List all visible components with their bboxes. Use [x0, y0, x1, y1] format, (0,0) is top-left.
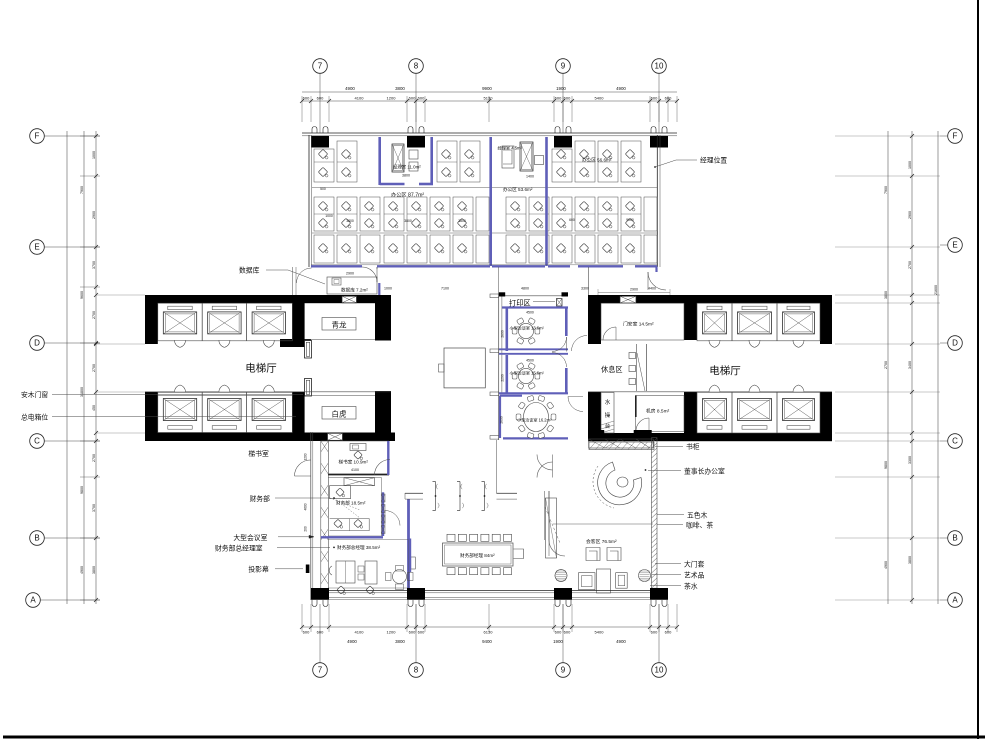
- svg-text:4100: 4100: [355, 96, 365, 101]
- svg-text:经理位置: 经理位置: [700, 156, 727, 165]
- svg-text:2900: 2900: [346, 272, 354, 276]
- svg-text:5400: 5400: [595, 630, 605, 635]
- svg-text:办公区 87.7m²: 办公区 87.7m²: [391, 191, 424, 199]
- svg-text:3800: 3800: [908, 556, 912, 564]
- svg-text:打印区: 打印区: [509, 298, 531, 307]
- svg-text:7100: 7100: [441, 287, 449, 291]
- svg-text:600: 600: [317, 96, 324, 101]
- svg-text:咖啡、茶: 咖啡、茶: [686, 521, 713, 530]
- svg-text:电梯厅: 电梯厅: [709, 364, 741, 377]
- svg-text:机房 8.5m²: 机房 8.5m²: [646, 408, 670, 415]
- svg-text:休息区: 休息区: [601, 365, 623, 374]
- svg-text:600: 600: [303, 96, 310, 101]
- svg-text:4400: 4400: [648, 287, 656, 291]
- svg-text:2700: 2700: [908, 261, 912, 269]
- svg-text:7: 7: [318, 62, 323, 71]
- svg-text:1200: 1200: [387, 96, 397, 101]
- svg-text:7900: 7900: [884, 186, 888, 194]
- svg-text:3800: 3800: [884, 291, 888, 299]
- svg-text:3700: 3700: [92, 504, 96, 512]
- svg-text:数据库: 数据库: [239, 266, 260, 275]
- svg-text:600: 600: [303, 630, 310, 635]
- svg-text:财务部 18.5m²: 财务部 18.5m²: [336, 500, 366, 507]
- svg-text:9: 9: [561, 62, 566, 71]
- svg-text:4800: 4800: [521, 287, 529, 291]
- svg-text:投影幕: 投影幕: [248, 565, 269, 574]
- svg-text:经理室 4.5m²: 经理室 4.5m²: [498, 145, 523, 151]
- svg-text:A: A: [952, 596, 958, 605]
- svg-text:9400: 9400: [482, 639, 492, 644]
- svg-text:4900: 4900: [616, 86, 626, 91]
- svg-text:3800: 3800: [346, 219, 354, 223]
- svg-text:9000: 9000: [626, 218, 634, 222]
- svg-text:E: E: [34, 243, 39, 252]
- svg-text:31800: 31800: [80, 387, 84, 397]
- svg-text:2900: 2900: [92, 211, 96, 219]
- svg-text:600: 600: [409, 630, 416, 635]
- svg-text:1200: 1200: [304, 453, 308, 460]
- svg-text:1000: 1000: [908, 161, 912, 169]
- svg-text:200: 200: [304, 526, 308, 532]
- svg-text:2600: 2600: [500, 416, 504, 424]
- svg-text:8: 8: [414, 666, 419, 675]
- svg-text:4500: 4500: [526, 359, 534, 363]
- svg-text:安木门窗: 安木门窗: [21, 390, 48, 399]
- svg-text:1000: 1000: [325, 214, 333, 218]
- svg-text:五色木: 五色木: [687, 511, 708, 520]
- svg-text:经理室 11.0m²: 经理室 11.0m²: [393, 164, 421, 170]
- svg-text:3700: 3700: [92, 261, 96, 269]
- svg-text:6130: 6130: [484, 630, 494, 635]
- svg-text:4900: 4900: [345, 86, 355, 91]
- svg-text:1400: 1400: [526, 175, 534, 179]
- svg-text:数据库 7.2m²: 数据库 7.2m²: [341, 287, 368, 294]
- svg-text:电梯厅: 电梯厅: [245, 362, 277, 375]
- svg-text:E: E: [952, 241, 957, 250]
- svg-text:F: F: [35, 132, 40, 141]
- svg-text:9800: 9800: [80, 486, 84, 494]
- svg-text:600: 600: [665, 630, 672, 635]
- svg-text:600: 600: [418, 96, 425, 101]
- svg-text:3300: 3300: [908, 456, 912, 464]
- svg-text:9900: 9900: [482, 86, 492, 91]
- svg-text:1000: 1000: [384, 287, 392, 291]
- svg-text:7: 7: [318, 666, 323, 675]
- svg-text:大型会议室: 大型会议室: [233, 533, 267, 542]
- svg-text:450: 450: [92, 405, 96, 411]
- svg-text:3800: 3800: [395, 86, 405, 91]
- svg-text:书柜: 书柜: [686, 442, 700, 451]
- svg-text:600: 600: [317, 630, 324, 635]
- svg-text:小型洽谈室 13.6m²: 小型洽谈室 13.6m²: [510, 324, 545, 330]
- svg-text:10: 10: [655, 62, 664, 71]
- svg-text:2700: 2700: [92, 311, 96, 319]
- svg-text:600: 600: [409, 96, 416, 101]
- svg-text:操: 操: [605, 411, 611, 419]
- svg-text:8: 8: [414, 62, 419, 71]
- svg-text:4900: 4900: [884, 561, 888, 569]
- svg-text:财务部经理 84m²: 财务部经理 84m²: [460, 552, 495, 559]
- svg-text:3300: 3300: [581, 287, 589, 291]
- svg-text:C: C: [952, 437, 958, 446]
- svg-text:600: 600: [564, 96, 571, 101]
- svg-text:1900: 1900: [556, 86, 566, 91]
- svg-text:3800: 3800: [395, 639, 405, 644]
- svg-text:D: D: [952, 339, 958, 348]
- svg-text:2900: 2900: [908, 211, 912, 219]
- svg-text:5130: 5130: [484, 96, 494, 101]
- svg-text:1200: 1200: [387, 630, 397, 635]
- svg-text:4900: 4900: [616, 639, 626, 644]
- svg-text:会客区 76.5m²: 会客区 76.5m²: [586, 538, 617, 545]
- svg-text:600: 600: [418, 630, 425, 635]
- svg-text:白虎: 白虎: [332, 408, 347, 418]
- svg-text:办公区 56.6m²: 办公区 56.6m²: [582, 157, 612, 164]
- svg-text:600: 600: [651, 630, 658, 635]
- svg-text:D: D: [34, 339, 40, 348]
- svg-text:600: 600: [564, 630, 571, 635]
- svg-text:小型洽谈室 15.6m²: 小型洽谈室 15.6m²: [510, 369, 545, 375]
- svg-text:梯书室 10.9m²: 梯书室 10.9m²: [339, 459, 369, 466]
- svg-text:4100: 4100: [351, 468, 359, 472]
- svg-text:4600: 4600: [304, 503, 308, 510]
- svg-text:大门套: 大门套: [684, 560, 705, 569]
- svg-text:3800: 3800: [402, 174, 410, 178]
- svg-text:小型洽谈室 16.2m²: 小型洽谈室 16.2m²: [517, 416, 552, 422]
- svg-text:600: 600: [651, 96, 658, 101]
- svg-text:3400: 3400: [908, 361, 912, 369]
- svg-text:艺术品: 艺术品: [684, 571, 705, 580]
- svg-text:4500: 4500: [526, 311, 534, 315]
- svg-text:9: 9: [561, 666, 566, 675]
- svg-text:2800: 2800: [500, 330, 504, 338]
- svg-text:2700: 2700: [92, 454, 96, 462]
- svg-text:办公区 53.6m²: 办公区 53.6m²: [503, 186, 533, 193]
- svg-text:5400: 5400: [595, 96, 605, 101]
- svg-text:7900: 7900: [80, 186, 84, 194]
- svg-text:F: F: [953, 132, 958, 141]
- svg-text:2700: 2700: [884, 361, 888, 369]
- svg-text:2900: 2900: [630, 288, 638, 292]
- svg-text:门安室 14.5m²: 门安室 14.5m²: [623, 321, 654, 328]
- svg-text:B: B: [34, 534, 39, 543]
- svg-text:4100: 4100: [355, 630, 365, 635]
- svg-text:台: 台: [605, 422, 611, 430]
- svg-text:600: 600: [665, 96, 672, 101]
- svg-text:600: 600: [555, 96, 562, 101]
- svg-text:财务部总经理室: 财务部总经理室: [215, 544, 263, 553]
- svg-text:4900: 4900: [80, 566, 84, 574]
- svg-text:水: 水: [605, 398, 611, 406]
- svg-text:C: C: [34, 437, 40, 446]
- svg-text:梯书室: 梯书室: [248, 449, 269, 458]
- svg-text:9600: 9600: [80, 291, 84, 299]
- svg-text:总电箱位: 总电箱位: [21, 413, 48, 422]
- svg-text:3800: 3800: [404, 219, 412, 223]
- svg-text:青龙: 青龙: [332, 319, 347, 329]
- svg-text:600: 600: [555, 630, 562, 635]
- svg-text:2700: 2700: [92, 364, 96, 372]
- svg-text:财务部: 财务部: [250, 494, 271, 503]
- svg-text:茶水: 茶水: [684, 582, 698, 591]
- svg-text:1900: 1900: [553, 639, 563, 644]
- svg-text:21600: 21600: [934, 285, 938, 295]
- svg-text:9800: 9800: [884, 461, 888, 469]
- svg-text:600: 600: [569, 218, 575, 222]
- svg-text:3800: 3800: [458, 219, 466, 223]
- svg-text:2200: 2200: [500, 374, 504, 382]
- svg-text:财务部总经理 38.5m²: 财务部总经理 38.5m²: [337, 544, 381, 551]
- svg-text:A: A: [30, 596, 36, 605]
- svg-text:B: B: [952, 534, 957, 543]
- svg-text:1000: 1000: [92, 151, 96, 159]
- svg-text:3800: 3800: [92, 566, 96, 574]
- svg-text:董事长办公室: 董事长办公室: [684, 467, 725, 476]
- svg-text:10: 10: [655, 666, 664, 675]
- svg-text:4900: 4900: [347, 639, 357, 644]
